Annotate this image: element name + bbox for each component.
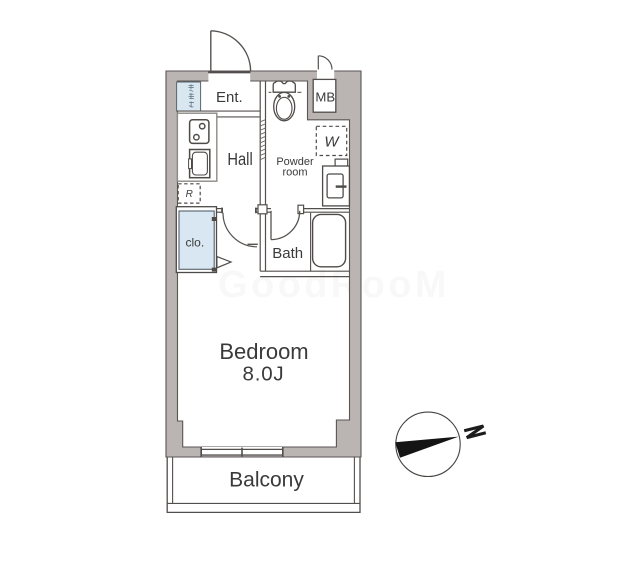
- svg-text:Balcony: Balcony: [229, 468, 304, 491]
- svg-text:Bath: Bath: [272, 245, 303, 262]
- svg-text:R: R: [186, 189, 193, 200]
- svg-text:Hall: Hall: [227, 150, 252, 169]
- svg-text:Ent.: Ent.: [216, 89, 243, 106]
- svg-text:room: room: [282, 166, 307, 178]
- svg-text:GoodRooM: GoodRooM: [218, 264, 450, 306]
- svg-text:Bedroom: Bedroom: [219, 339, 308, 364]
- svg-text:clo.: clo.: [186, 235, 205, 249]
- svg-text:W: W: [324, 134, 340, 151]
- svg-text:8.0J: 8.0J: [243, 363, 285, 386]
- svg-text:MB: MB: [315, 90, 335, 105]
